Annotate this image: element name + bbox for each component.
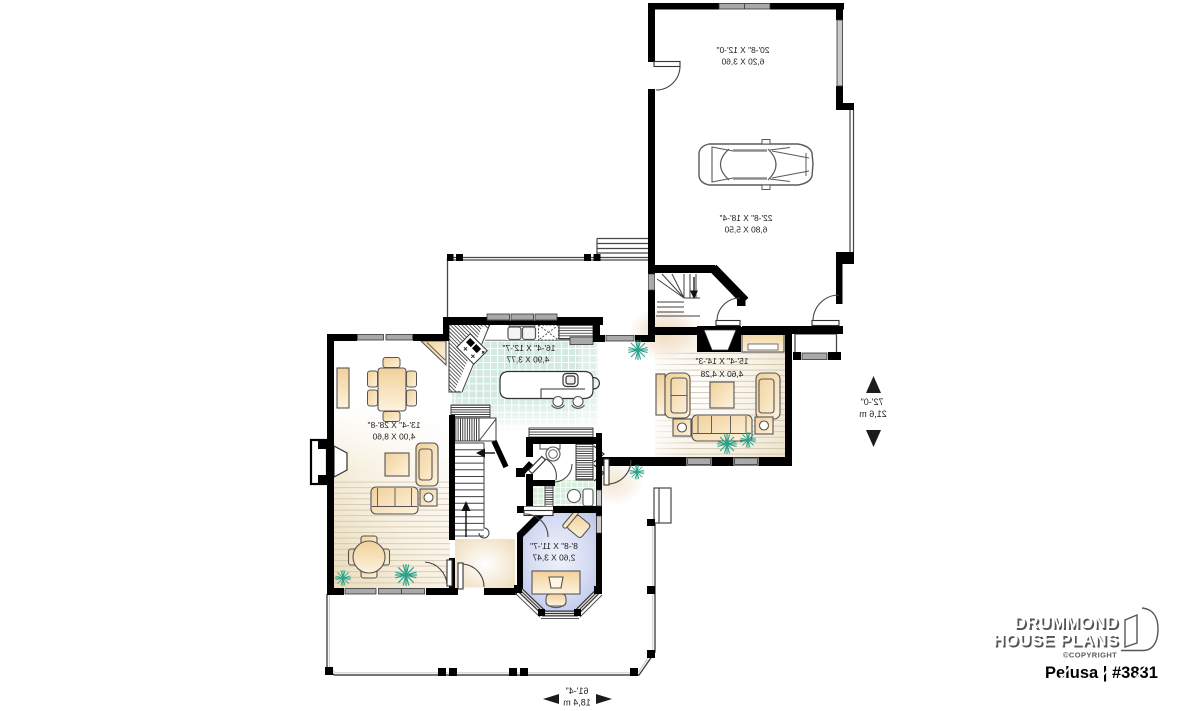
svg-text:13'-4" X 28'-8": 13'-4" X 28'-8" [368, 420, 421, 430]
svg-text:18,4 m: 18,4 m [563, 698, 591, 708]
svg-text:8'-8" X 11'-7": 8'-8" X 11'-7" [530, 541, 578, 551]
svg-text:4,60 X 4,28: 4,60 X 4,28 [700, 369, 743, 379]
svg-text:15'-4" X 14'-3": 15'-4" X 14'-3" [696, 356, 749, 366]
svg-text:©COPYRIGHT: ©COPYRIGHT [1063, 651, 1117, 660]
svg-text:4,00 X 8,60: 4,00 X 8,60 [372, 432, 415, 442]
svg-text:2,60 X 3,47: 2,60 X 3,47 [532, 553, 575, 563]
svg-text:21,6 m: 21,6 m [859, 409, 887, 419]
svg-text:61'-4": 61'-4" [566, 686, 589, 696]
svg-text:16'-4" X 12'-7": 16'-4" X 12'-7" [503, 343, 556, 353]
svg-text:6,20 X 3,60: 6,20 X 3,60 [721, 57, 764, 67]
svg-text:20'-8" X 12'-0": 20'-8" X 12'-0" [717, 45, 770, 55]
svg-text:22'-8" X 18'-4": 22'-8" X 18'-4" [720, 213, 773, 223]
svg-text:DRUMMOND: DRUMMOND [1014, 614, 1119, 632]
svg-text:6,80 X 5,50: 6,80 X 5,50 [724, 225, 767, 235]
svg-text:72'-0": 72'-0" [861, 397, 884, 407]
svg-text:4,90 X 3,77: 4,90 X 3,77 [506, 355, 549, 365]
svg-text:HOUSE PLANS: HOUSE PLANS [993, 632, 1119, 650]
